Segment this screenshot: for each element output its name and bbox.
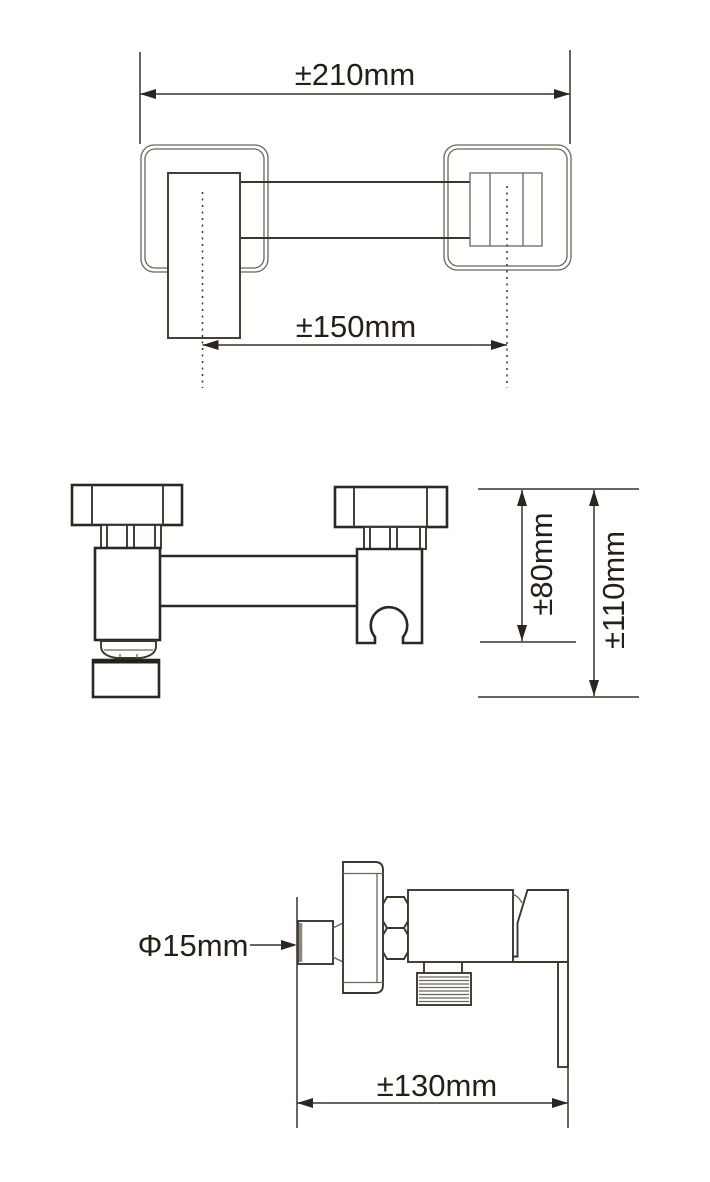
shower-holder-body: [357, 549, 422, 643]
dim-overall-height: ±110mm: [589, 490, 631, 696]
diverter-knob: [417, 962, 471, 1005]
arrowhead-right: [491, 340, 507, 350]
hex-nut-right: [364, 527, 426, 549]
arrowhead-up: [589, 490, 599, 506]
holder-outline: [470, 173, 542, 246]
valve-body-side: [408, 890, 513, 962]
dim-label-center-distance: ±150mm: [296, 309, 416, 344]
arrowhead-right: [552, 1098, 568, 1108]
valve-body-left: [95, 548, 160, 640]
arrowhead-left: [140, 89, 156, 99]
mixer-body-bar-front: [160, 556, 357, 606]
body-handle-joint: [513, 894, 522, 903]
handle-lever: [558, 962, 568, 1067]
dim-projection: ±130mm: [297, 1068, 568, 1108]
left-valve-front: [72, 485, 182, 697]
faucet-technical-drawing: ±210mm: [0, 0, 710, 1182]
dim-overall-width: ±210mm: [140, 50, 570, 144]
dim-label-overall-width: ±210mm: [295, 57, 415, 92]
arrowhead-down: [589, 680, 599, 696]
dim-holder-height: ±80mm: [517, 490, 559, 641]
side-view: Φ15mm: [138, 862, 568, 1128]
wall-plate-side: [343, 862, 383, 993]
top-view: ±210mm: [140, 50, 571, 388]
holder-top-view: [470, 173, 542, 246]
front-view: ±80mm ±110mm: [72, 485, 639, 697]
outlet-stub-side: [298, 921, 343, 964]
hex-nuts-side: [383, 897, 408, 959]
knob-outline: [417, 973, 471, 1005]
outlet-fitting: [298, 921, 333, 964]
dim-label-projection: ±130mm: [377, 1068, 497, 1103]
dim-label-holder-height: ±80mm: [524, 512, 559, 615]
right-valve-front: [335, 487, 447, 643]
arrowhead-up: [517, 490, 527, 506]
arrowhead-down: [517, 625, 527, 641]
handle-side: [513, 890, 568, 1067]
hex-nut-left: [101, 525, 161, 548]
hex-nut-lower: [383, 928, 408, 959]
arrowhead-left: [297, 1098, 313, 1108]
knob-stem: [424, 962, 462, 973]
wall-flange-left: [72, 485, 182, 525]
dim-center-distance: ±150mm: [203, 309, 508, 350]
dim-label-outlet-diameter: Φ15mm: [138, 928, 249, 963]
spout-outlet: [93, 660, 159, 697]
taper-lines: [333, 923, 343, 962]
dim-label-overall-height: ±110mm: [596, 531, 631, 649]
dim-heights: ±80mm ±110mm: [478, 489, 639, 697]
wall-flange-right: [335, 487, 447, 527]
mixer-body-bar-top: [240, 182, 470, 238]
arrowhead-right: [281, 940, 297, 950]
arrowhead-right: [554, 89, 570, 99]
hex-nut-upper: [383, 897, 408, 928]
callout-outlet-diameter: Φ15mm: [138, 928, 297, 963]
handle-top-view: [168, 173, 240, 338]
arrowhead-left: [203, 340, 219, 350]
drawing-sheet: ±210mm: [0, 0, 710, 1182]
